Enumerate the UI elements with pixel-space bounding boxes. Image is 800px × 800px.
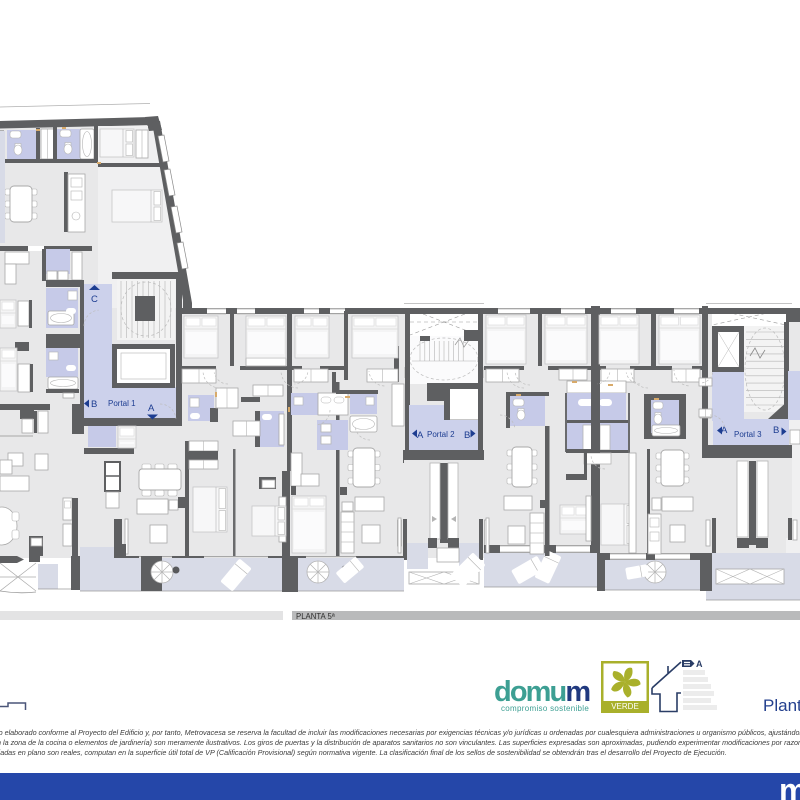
svg-text:VERDE: VERDE xyxy=(611,702,639,711)
svg-text:Portal 3: Portal 3 xyxy=(734,430,762,439)
svg-text:B: B xyxy=(773,425,779,436)
svg-text:C: C xyxy=(91,294,98,305)
svg-text:A: A xyxy=(148,403,155,414)
svg-text:A: A xyxy=(417,430,424,441)
svg-text:A: A xyxy=(696,659,703,669)
svg-text:B: B xyxy=(91,399,97,410)
svg-text:B: B xyxy=(464,430,470,441)
svg-text:Portal 2: Portal 2 xyxy=(427,430,455,439)
svg-text:Portal 1: Portal 1 xyxy=(108,399,136,408)
